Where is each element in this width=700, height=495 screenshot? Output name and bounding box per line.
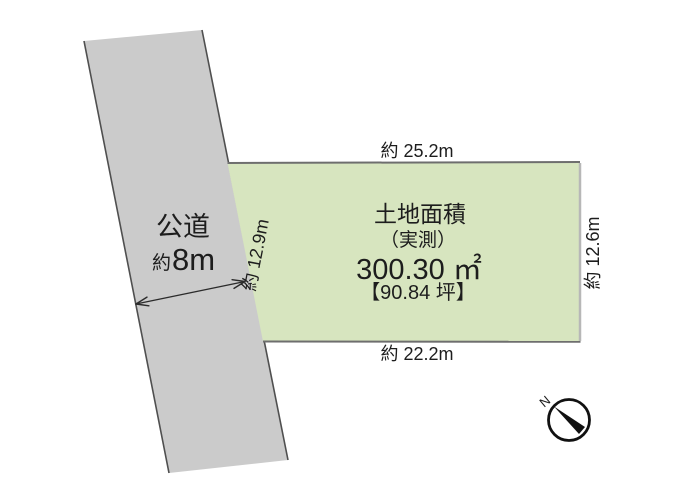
road-width-prefix: 約 — [152, 252, 171, 274]
compass-north-label: N — [536, 393, 553, 411]
parcel-area-tsubo: 【90.84 坪】 — [360, 281, 476, 304]
land-plot-diagram-page: 公道 約 8m 土地面積 （実測） 300.30 ㎡ 【90.84 坪】 約 2… — [0, 0, 700, 495]
parcel-top-border — [228, 162, 581, 163]
compass: N — [536, 393, 589, 441]
road-width-value: 8m — [172, 242, 215, 277]
dim-right-label: 約 12.6m — [583, 216, 603, 289]
parcel-title: 土地面積 — [374, 201, 466, 227]
road-label: 公道 — [156, 212, 210, 242]
dim-top-label: 約 25.2m — [380, 141, 453, 161]
land-plot-diagram: 公道 約 8m 土地面積 （実測） 300.30 ㎡ 【90.84 坪】 約 2… — [0, 0, 700, 495]
parcel-measure-type: （実測） — [380, 229, 456, 251]
dim-bottom-label: 約 22.2m — [380, 344, 453, 364]
parcel-area — [228, 162, 581, 342]
